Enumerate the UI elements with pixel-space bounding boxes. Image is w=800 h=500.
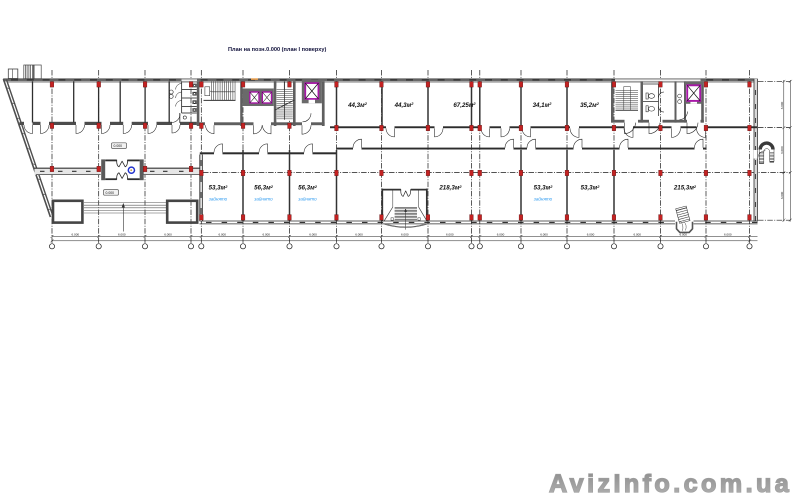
svg-text:215,3м2: 215,3м2 (673, 184, 697, 192)
svg-text:6.000: 6.000 (446, 233, 454, 237)
svg-text:План на позн.0.000 (план І пов: План на позн.0.000 (план І поверху) (228, 47, 327, 53)
svg-text:6.000: 6.000 (218, 233, 226, 237)
svg-text:6.000: 6.000 (401, 233, 409, 237)
svg-text:44,3м2: 44,3м2 (394, 101, 415, 109)
svg-text:6.000: 6.000 (355, 233, 363, 237)
svg-text:6.000: 6.000 (780, 146, 784, 154)
svg-text:AvizInfo.com.ua: AvizInfo.com.ua (549, 470, 792, 498)
svg-text:6.000: 6.000 (780, 191, 784, 199)
svg-text:зайнято: зайнято (533, 195, 553, 201)
svg-text:6.000: 6.000 (587, 233, 595, 237)
svg-text:6.000: 6.000 (780, 101, 784, 109)
svg-text:6.000: 6.000 (118, 233, 126, 237)
svg-text:6.000: 6.000 (724, 233, 732, 237)
svg-text:0.000: 0.000 (106, 191, 115, 195)
svg-text:67,25м2: 67,25м2 (453, 101, 476, 109)
svg-text:6.000: 6.000 (497, 233, 505, 237)
svg-text:6.000: 6.000 (540, 233, 548, 237)
svg-text:6.000: 6.000 (164, 233, 172, 237)
svg-text:6.000: 6.000 (309, 233, 317, 237)
svg-text:44,3м2: 44,3м2 (347, 101, 368, 109)
svg-text:6.000: 6.000 (633, 233, 641, 237)
svg-text:6.000: 6.000 (262, 233, 270, 237)
svg-text:6.000: 6.000 (72, 233, 80, 237)
svg-text:218,3м2: 218,3м2 (438, 184, 462, 192)
svg-text:зайнято: зайнято (253, 195, 273, 201)
svg-text:зайнято: зайнято (208, 195, 228, 201)
svg-text:6.000: 6.000 (679, 233, 687, 237)
svg-text:зайнято: зайнято (297, 195, 317, 201)
svg-text:0.000: 0.000 (114, 144, 123, 148)
